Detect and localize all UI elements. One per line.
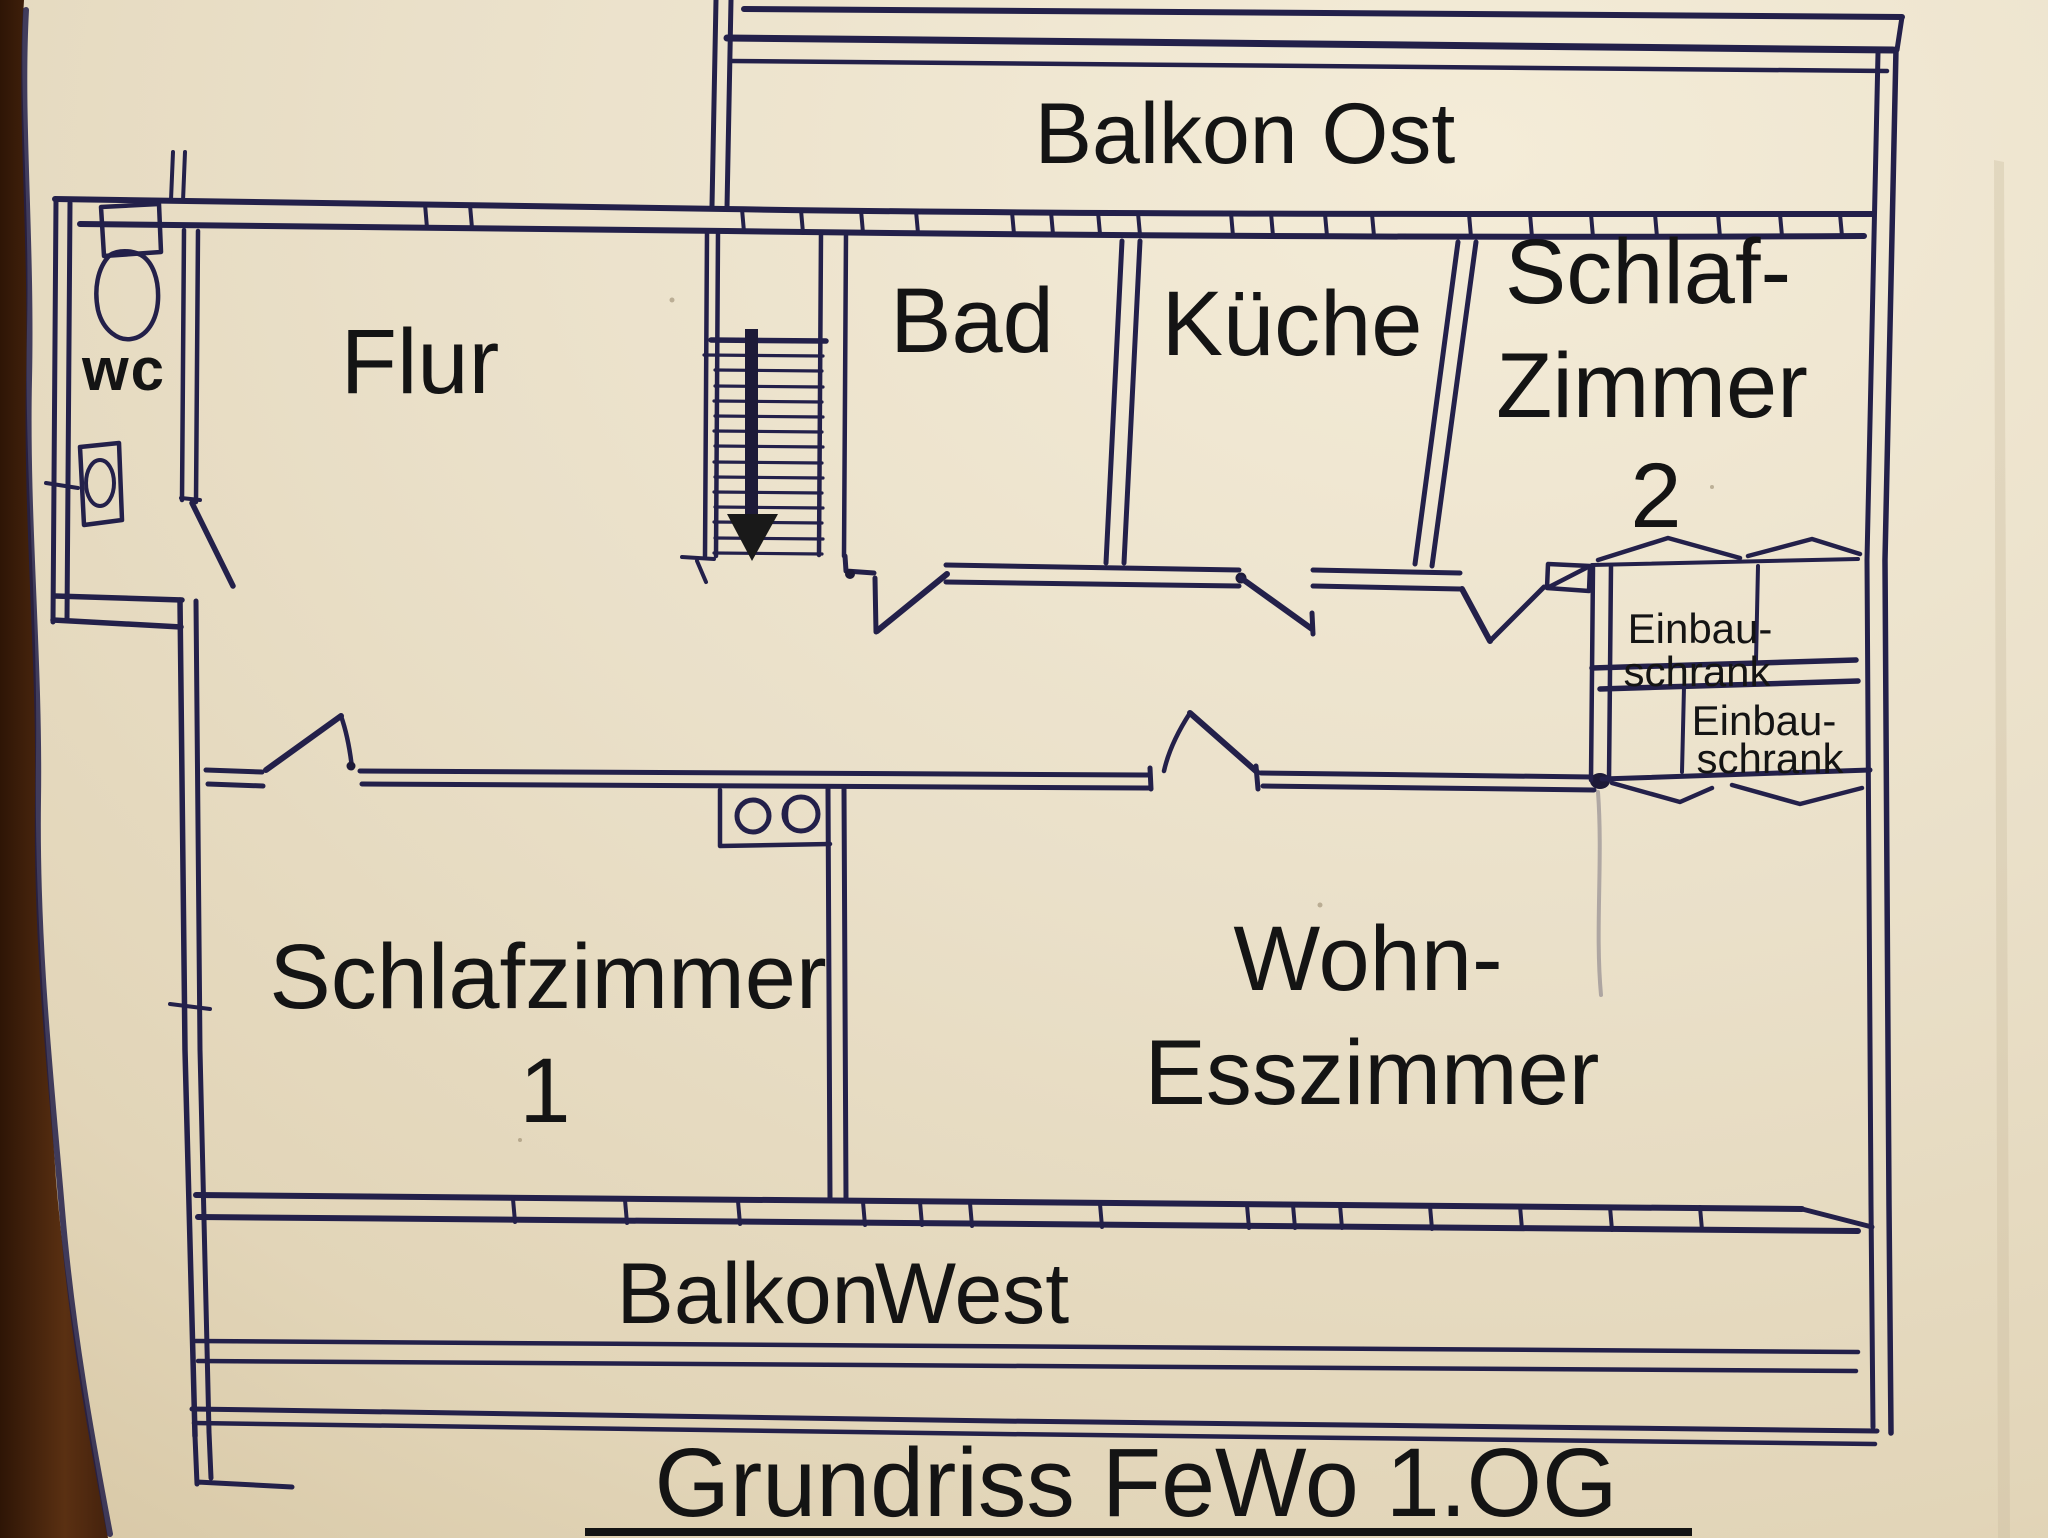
bad-label: Bad xyxy=(890,270,1054,372)
stairs-top-tread xyxy=(711,340,826,341)
kueche-label: Küche xyxy=(1162,273,1423,375)
wc-label: wc xyxy=(81,336,166,403)
svg-text:2: 2 xyxy=(1630,445,1681,547)
svg-text:Wohn-: Wohn- xyxy=(1233,908,1502,1010)
svg-text:1: 1 xyxy=(519,1040,570,1142)
closet2-divider xyxy=(1682,687,1684,772)
svg-text:Esszimmer: Esszimmer xyxy=(1145,1022,1600,1124)
balkon-west-label: Balkon West xyxy=(617,1246,1070,1342)
floor-plan-photo: Balkon Ost wc Flur Bad Küche Schlaf- Zim… xyxy=(0,0,2048,1538)
einbauschrank-top-label: Einbau- schrank xyxy=(1623,605,1772,695)
svg-text:schrank: schrank xyxy=(1696,735,1844,782)
einbauschrank-bottom-label: Einbau- schrank xyxy=(1692,697,1845,782)
svg-text:Einbau-: Einbau- xyxy=(1628,605,1773,652)
plan-title: Grundriss FeWo 1.OG xyxy=(585,1428,1692,1537)
bad-door-jamb xyxy=(875,578,876,632)
flur-label: Flur xyxy=(341,311,499,413)
svg-text:Schlafzimmer: Schlafzimmer xyxy=(269,926,826,1028)
svg-text:schrank: schrank xyxy=(1623,648,1771,695)
svg-text:Balkon: Balkon xyxy=(617,1246,880,1342)
floor-plan-drawing: Balkon Ost wc Flur Bad Küche Schlaf- Zim… xyxy=(0,0,2048,1538)
svg-text:Zimmer: Zimmer xyxy=(1496,335,1808,437)
svg-text:West: West xyxy=(875,1246,1069,1342)
balkon-ost-label: Balkon Ost xyxy=(1035,86,1456,182)
svg-text:Grundriss FeWo 1.OG: Grundriss FeWo 1.OG xyxy=(654,1428,1617,1537)
ink-smudge xyxy=(1598,792,1601,995)
svg-text:Schlaf-: Schlaf- xyxy=(1505,221,1791,323)
